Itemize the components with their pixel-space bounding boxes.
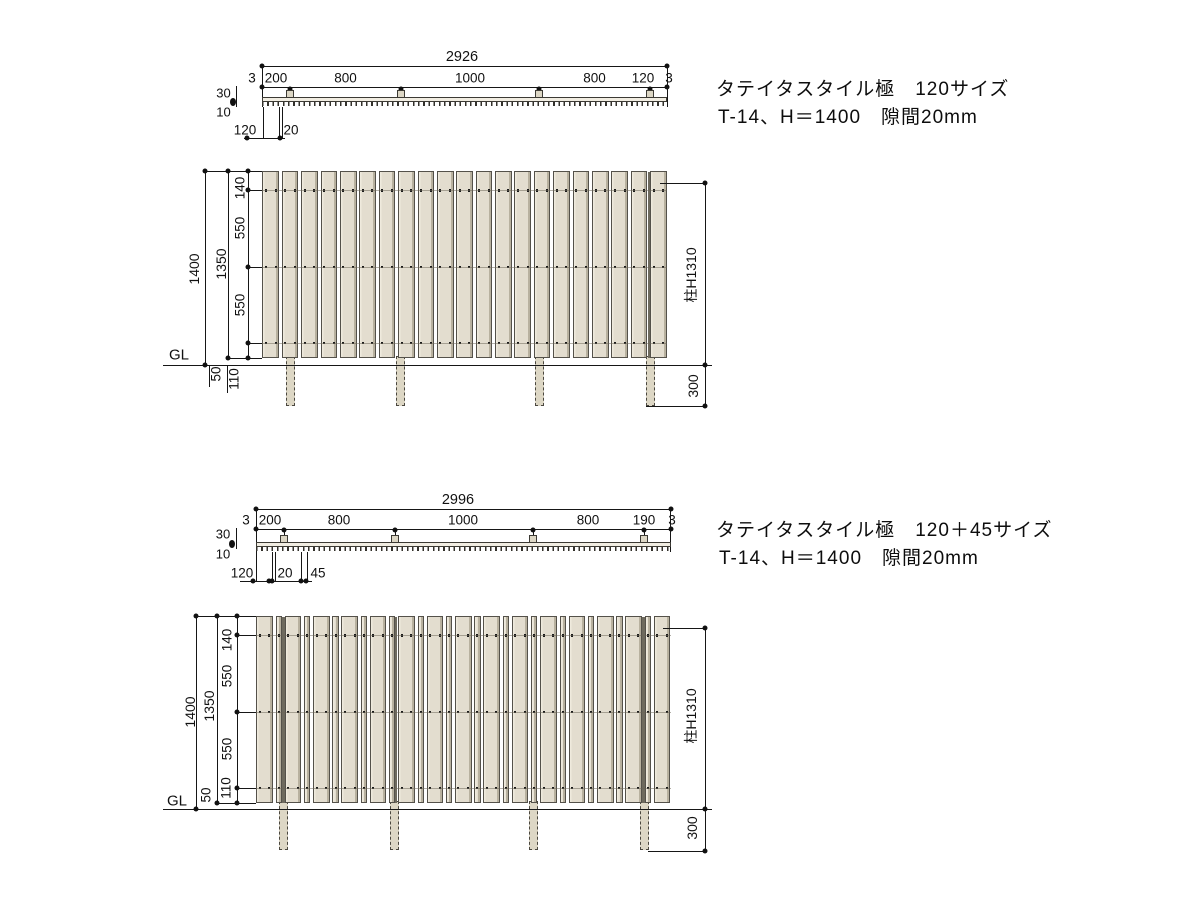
plan-post-tick-dot bbox=[642, 528, 647, 533]
elev-panel-dim-line bbox=[217, 616, 218, 803]
fence-board bbox=[495, 171, 512, 358]
elev-row-leader bbox=[237, 788, 256, 789]
plan-segment-dim-label: 1000 bbox=[448, 513, 478, 527]
fence-board bbox=[503, 616, 509, 803]
elev-top-offset-label: 140 bbox=[233, 177, 247, 200]
elev-overall-dim-line bbox=[205, 171, 206, 365]
plan-rail-height-label: 30 bbox=[216, 86, 230, 99]
plan-segment-dim-label: 3 bbox=[242, 513, 250, 527]
fence-board bbox=[379, 171, 396, 358]
post-underground bbox=[535, 356, 544, 406]
plan-detail-extension bbox=[301, 552, 302, 582]
plan-board-ends bbox=[256, 547, 671, 551]
plan-detail-extension bbox=[279, 107, 280, 139]
fence-board bbox=[514, 171, 531, 358]
drawing-layer: 2926320080010008001203301012020GL1400135… bbox=[0, 0, 1200, 900]
plan-detail-dim-label: 20 bbox=[277, 566, 292, 580]
ground-label: GL bbox=[169, 348, 189, 363]
fence-board bbox=[455, 616, 472, 803]
plan-segment-dim-label: 1000 bbox=[455, 71, 485, 85]
plan-segment-dim-label: 800 bbox=[334, 71, 357, 85]
plan-segment-dim-label: 800 bbox=[577, 513, 600, 527]
elev-spacing-lower-label: 550 bbox=[220, 738, 234, 761]
fence-board bbox=[611, 171, 628, 358]
d bbox=[703, 848, 708, 853]
plan-post-section bbox=[397, 90, 405, 98]
fence-board bbox=[483, 616, 500, 803]
plan-post-section bbox=[280, 535, 288, 543]
post-height-dim-line bbox=[705, 628, 706, 810]
plan-post-section bbox=[646, 90, 654, 98]
plan-side-tick-line bbox=[236, 86, 237, 107]
ground-line bbox=[163, 365, 712, 366]
rail-line-through-boards bbox=[262, 343, 667, 344]
elev-top-extension bbox=[205, 171, 262, 172]
elev-row-leader bbox=[248, 190, 262, 191]
elev-height-panel-label: 1350 bbox=[214, 248, 228, 279]
elev-height-overall-label: 1400 bbox=[183, 696, 197, 727]
elev-ground-clearance-label: 50 bbox=[199, 787, 213, 802]
plan-detail-extension bbox=[256, 552, 257, 582]
plan-post-tick-dot bbox=[392, 528, 397, 533]
d bbox=[703, 404, 708, 409]
plan-post-section bbox=[286, 90, 294, 98]
plan-segment-dim-line bbox=[262, 87, 667, 88]
plan-segment-dim-label: 120 bbox=[632, 71, 655, 85]
d bbox=[703, 807, 708, 812]
elev-height-panel-label: 1350 bbox=[202, 690, 216, 721]
fence-board bbox=[256, 616, 273, 803]
elev-spacing-lower-label: 550 bbox=[233, 293, 247, 316]
d bbox=[703, 625, 708, 630]
fence-board bbox=[592, 171, 609, 358]
elev-height-overall-label: 1400 bbox=[187, 253, 201, 284]
plan-detail-dot bbox=[270, 579, 275, 584]
fence-board bbox=[418, 616, 424, 803]
plan-overall-dim-label: 2926 bbox=[446, 50, 478, 65]
plan-board-depth-label: 10 bbox=[216, 105, 230, 118]
embed-leader bbox=[646, 406, 705, 407]
post-height-leader bbox=[663, 628, 705, 629]
elev-bottom-extension bbox=[217, 803, 256, 804]
plan-segment-dim-end bbox=[253, 526, 258, 531]
fence-board bbox=[370, 616, 387, 803]
fence-board bbox=[531, 616, 537, 803]
fence-board bbox=[446, 616, 452, 803]
fence-board bbox=[398, 171, 415, 358]
ground-line bbox=[163, 809, 712, 810]
plan-post-tick-dot bbox=[531, 528, 536, 533]
fence-board bbox=[540, 616, 557, 803]
elev-bottom-offset-label: 110 bbox=[227, 368, 241, 390]
fence-board bbox=[341, 616, 358, 803]
rail-line-through-boards bbox=[256, 712, 671, 713]
plan-overall-dim-label: 2996 bbox=[442, 493, 474, 508]
plan-detail-dim-label: 120 bbox=[234, 123, 257, 137]
fence-board bbox=[616, 616, 622, 803]
plan-segment-dim-label: 800 bbox=[583, 71, 606, 85]
fence-technical-drawing: タテイタスタイル極 120サイズ T-14、H＝1400 隙間20mm タテイタ… bbox=[0, 0, 1200, 900]
fence-board bbox=[418, 171, 435, 358]
plan-side-tick-line bbox=[236, 528, 237, 549]
d bbox=[203, 362, 208, 367]
embed-dim-line bbox=[705, 809, 706, 851]
plan-rail-height-label: 30 bbox=[216, 528, 230, 541]
elev-spacing-upper-label: 550 bbox=[220, 665, 234, 688]
rail-line-through-boards bbox=[262, 190, 667, 191]
plan-segment-dim-label: 190 bbox=[633, 513, 656, 527]
fence-board bbox=[476, 171, 493, 358]
fence-board bbox=[569, 616, 586, 803]
fence-board bbox=[534, 171, 551, 358]
plan-segment-dim-label: 3 bbox=[248, 71, 256, 85]
fence-board bbox=[282, 171, 299, 358]
plan-detail-extension bbox=[263, 107, 264, 139]
plan-detail-extension bbox=[307, 552, 308, 582]
plan-detail-dim-label: 20 bbox=[283, 123, 298, 137]
plan-segment-dim-line bbox=[256, 529, 671, 530]
plan-board-ends bbox=[262, 102, 667, 106]
plan-detail-extension bbox=[275, 552, 276, 582]
plan-segment-dim-label: 3 bbox=[668, 513, 676, 527]
elev-ground-clearance-label: 50 bbox=[209, 366, 223, 381]
elev-bottom-offset-label: 110 bbox=[219, 777, 233, 799]
fence-board bbox=[332, 616, 338, 803]
elev-spacing-upper-label: 550 bbox=[233, 217, 247, 240]
fence-board bbox=[597, 616, 614, 803]
plan-detail-dot bbox=[298, 579, 303, 584]
rail-line-through-boards bbox=[256, 788, 671, 789]
plan-segment-dim-label: 800 bbox=[328, 513, 351, 527]
embed-depth-label: 300 bbox=[686, 374, 700, 397]
d bbox=[194, 807, 199, 812]
fence-board bbox=[340, 171, 357, 358]
fence-board bbox=[625, 616, 642, 803]
plan-detail-dim-label: 120 bbox=[231, 566, 254, 580]
elev-bottom-extension bbox=[228, 358, 262, 359]
fence-board bbox=[437, 171, 454, 358]
post-height-label: 柱H1310 bbox=[684, 247, 698, 302]
embed-depth-label: 300 bbox=[685, 816, 699, 839]
fence-board bbox=[321, 171, 338, 358]
fence-board bbox=[631, 171, 648, 358]
plan-side-dot bbox=[229, 540, 235, 548]
plan-overall-dim-line bbox=[262, 66, 667, 67]
plan-post-section bbox=[391, 535, 399, 543]
rail-line-through-boards bbox=[262, 267, 667, 268]
elev-top-offset-label: 140 bbox=[220, 629, 234, 652]
fence-board bbox=[389, 616, 395, 803]
fence-board bbox=[512, 616, 529, 803]
d bbox=[703, 362, 708, 367]
plan-detail-extension bbox=[272, 552, 273, 582]
ground-label: GL bbox=[167, 794, 187, 809]
elev-row-leader bbox=[237, 712, 256, 713]
fence-board bbox=[301, 171, 318, 358]
plan-detail-dot bbox=[278, 136, 283, 141]
plan-board-depth-label: 10 bbox=[216, 548, 230, 561]
fence-board bbox=[654, 616, 671, 803]
post-height-label: 柱H1310 bbox=[684, 688, 698, 743]
elev-row-leader bbox=[248, 267, 262, 268]
fence-board bbox=[560, 616, 566, 803]
fence-board bbox=[573, 171, 590, 358]
rail-line-through-boards bbox=[256, 635, 671, 636]
plan-segment-dim-label: 200 bbox=[265, 71, 288, 85]
fence-board bbox=[359, 171, 376, 358]
plan-detail-dim-label: 45 bbox=[310, 566, 325, 580]
plan-post-tick-dot bbox=[281, 528, 286, 533]
fence-board bbox=[304, 616, 310, 803]
fence-board bbox=[456, 171, 473, 358]
fence-board bbox=[262, 171, 279, 358]
plan-overall-dim-line bbox=[256, 509, 671, 510]
plan-segment-dim-label: 3 bbox=[665, 71, 673, 85]
post-underground bbox=[646, 356, 655, 406]
plan-post-section bbox=[529, 535, 537, 543]
embed-leader bbox=[648, 851, 705, 852]
fence-board bbox=[650, 171, 667, 358]
elev-row-leader bbox=[248, 343, 262, 344]
fence-board bbox=[474, 616, 480, 803]
plan-segment-dim-end bbox=[260, 85, 265, 90]
post-underground bbox=[286, 356, 295, 406]
post-underground bbox=[396, 356, 405, 406]
elev-top-extension bbox=[196, 616, 256, 617]
plan-segment-dim-label: 200 bbox=[259, 513, 282, 527]
plan-post-section bbox=[535, 90, 543, 98]
fence-board bbox=[313, 616, 330, 803]
fence-board bbox=[361, 616, 367, 803]
fence-board bbox=[645, 616, 651, 803]
post-height-leader bbox=[660, 183, 705, 184]
elev-row-leader bbox=[237, 635, 256, 636]
fence-board bbox=[285, 616, 302, 803]
plan-detail-dot bbox=[303, 579, 308, 584]
d bbox=[703, 181, 708, 186]
fence-board bbox=[398, 616, 415, 803]
fence-board bbox=[427, 616, 444, 803]
fence-board bbox=[553, 171, 570, 358]
fence-board bbox=[588, 616, 594, 803]
plan-post-section bbox=[640, 535, 648, 543]
post-height-dim-line bbox=[705, 183, 706, 365]
fence-board bbox=[276, 616, 282, 803]
embed-dim-line bbox=[705, 365, 706, 407]
